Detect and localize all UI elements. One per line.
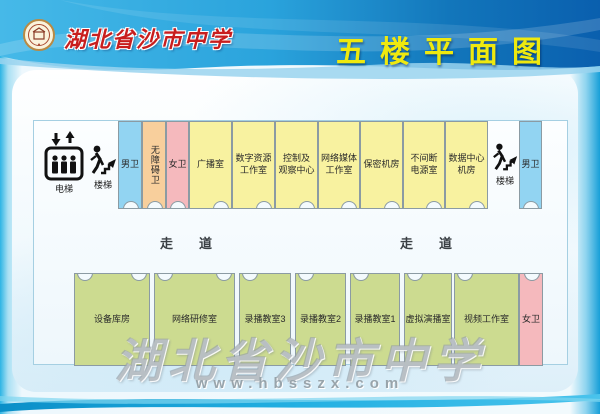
room-ups: 不间断 电源室 <box>403 121 445 209</box>
room-broadcast: 广播室 <box>189 121 232 209</box>
door-notch <box>256 201 272 209</box>
door-notch <box>147 201 163 209</box>
door-notch <box>457 273 473 281</box>
door-notch <box>242 273 258 281</box>
stairs-label: 楼梯 <box>496 174 514 187</box>
door-notch <box>524 273 540 281</box>
door-notch <box>353 273 369 281</box>
room-digital-resource-studio: 数字资源 工作室 <box>232 121 275 209</box>
door-notch <box>384 201 400 209</box>
stairs-block-left: 楼梯 <box>88 145 118 191</box>
door-notch <box>469 201 485 209</box>
room-womens-toilet-top: 女卫 <box>166 121 189 209</box>
elevator-block: 电梯 <box>44 131 84 195</box>
room-equipment-storage: 设备库房 <box>74 273 150 366</box>
room-network-training: 网络研修室 <box>154 273 235 366</box>
stairs-icon <box>491 143 519 173</box>
room-mens-toilet-right: 男卫 <box>519 121 542 209</box>
door-notch <box>216 273 232 281</box>
stairs-block-right: 楼梯 <box>491 143 519 187</box>
door-notch <box>170 201 186 209</box>
stairs-label: 楼梯 <box>94 178 112 191</box>
website-url: www.hbsszx.com <box>0 375 600 392</box>
door-notch <box>77 273 93 281</box>
floor-plan: 电梯 楼梯 男卫 无障碍卫 女卫 广播室 <box>33 120 568 365</box>
door-notch <box>426 201 442 209</box>
room-confidential-server: 保密机房 <box>360 121 403 209</box>
school-name: 湖北省沙市中学 <box>64 22 232 54</box>
room-womens-toilet-bottom: 女卫 <box>519 273 543 366</box>
corridor-label-right: 走道 <box>369 233 509 252</box>
door-notch <box>131 273 147 281</box>
door-notch <box>157 273 173 281</box>
corridor-label-left: 走道 <box>129 233 269 252</box>
door-notch <box>299 201 315 209</box>
room-control-observation-center: 控制及 观察中心 <box>275 121 318 209</box>
room-recording-classroom-1: 录播教室1 <box>350 273 400 366</box>
elevator-icon <box>44 131 84 181</box>
door-notch <box>123 201 139 209</box>
room-recording-classroom-2: 录播教室2 <box>295 273 346 366</box>
door-notch <box>298 273 314 281</box>
room-network-media-studio: 网络媒体 工作室 <box>318 121 360 209</box>
bottom-wave-decor <box>0 390 600 414</box>
door-notch <box>407 273 423 281</box>
door-notch <box>213 201 229 209</box>
room-virtual-studio: 虚拟演播室 <box>404 273 452 366</box>
room-video-studio: 视频工作室 <box>454 273 519 366</box>
room-recording-classroom-3: 录播教室3 <box>239 273 291 366</box>
school-seal-logo <box>23 19 55 51</box>
stairs-icon <box>88 145 118 177</box>
room-accessible-toilet: 无障碍卫 <box>142 121 166 209</box>
room-data-center: 数据中心 机房 <box>445 121 488 209</box>
door-notch <box>523 201 539 209</box>
door-notch <box>341 201 357 209</box>
elevator-label: 电梯 <box>55 182 73 195</box>
floor-plan-poster: 湖北省沙市中学 五楼平面图 电梯 <box>0 0 600 414</box>
page-title: 五楼平面图 <box>336 27 556 71</box>
room-mens-toilet-left: 男卫 <box>118 121 142 209</box>
